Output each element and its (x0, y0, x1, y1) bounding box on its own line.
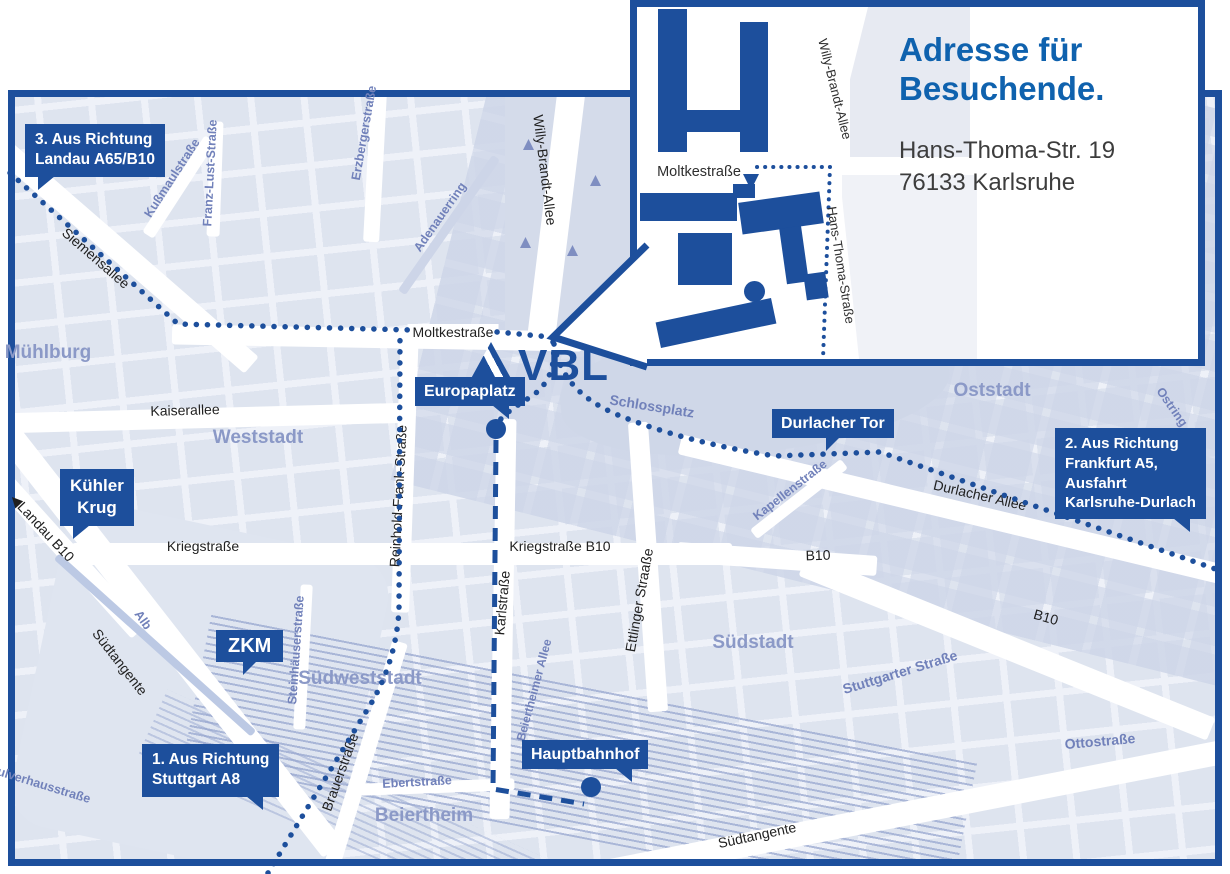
inset-street-label-moltkestrasse: Moltkestraße (657, 164, 741, 180)
inset-address-line1: Hans-Thoma-Str. 19 (899, 135, 1179, 167)
marker-landau: 3. Aus Richtung Landau A65/B10 (25, 124, 165, 177)
karlsruhe-directions-map: Siemensallee Kußmaulstraße Franz-Lust-St… (0, 0, 1230, 874)
marker-frankfurt: 2. Aus Richtung Frankfurt A5, Ausfahrt K… (1055, 428, 1206, 519)
street-label-kriegstrasse: Kriegstraße (167, 538, 239, 554)
street-label-kriegstrasse-b10: Kriegstraße B10 (509, 538, 610, 554)
inset-address: Hans-Thoma-Str. 19 76133 Karlsruhe (899, 135, 1179, 200)
visitor-address-inset: Moltkestraße Willy-Brandt-Allee Hans-Tho… (630, 0, 1205, 366)
district-label-oststadt: Oststadt (953, 380, 1030, 402)
district-label-weststadt: Weststadt (213, 427, 303, 449)
inset-pointer-tail (543, 240, 655, 372)
marker-durlacher-tor: Durlacher Tor (772, 409, 894, 438)
district-label-muehlburg: Mühlburg (5, 342, 92, 364)
street-label-b10-mid: B10 (805, 547, 830, 564)
marker-stuttgart: 1. Aus Richtung Stuttgart A8 (142, 744, 279, 797)
street-label-moltkestrasse: Moltkestraße (408, 324, 499, 340)
marker-europaplatz: Europaplatz (415, 377, 525, 406)
marker-hauptbahnhof: Hauptbahnhof (522, 740, 648, 769)
street-label-kaiserallee: Kaiserallee (150, 401, 220, 419)
marker-kuehler-krug: Kühler Krug (60, 469, 134, 526)
district-label-suedweststadt: Südweststadt (298, 668, 422, 690)
marker-zkm: ZKM (216, 630, 283, 662)
arrow-down-icon (743, 174, 759, 190)
inset-address-line2: 76133 Karlsruhe (899, 167, 1179, 199)
inset-title: Adresse für Besuchende. (899, 31, 1179, 109)
district-label-suedstadt: Südstadt (712, 632, 793, 654)
district-label-beiertheim: Beiertheim (375, 805, 473, 827)
